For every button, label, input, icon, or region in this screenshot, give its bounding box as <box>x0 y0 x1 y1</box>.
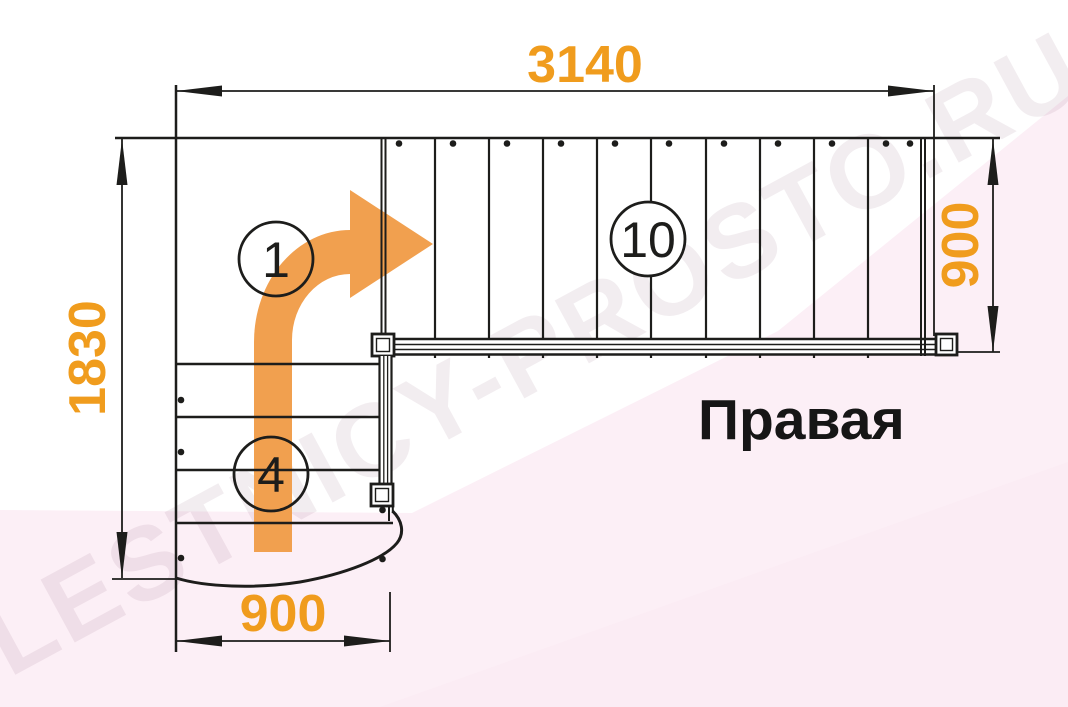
step-number-1: 1 <box>262 232 290 288</box>
newel-post-bottom <box>371 484 393 506</box>
orientation-label: Правая <box>698 387 958 453</box>
lower-handrail <box>379 356 392 484</box>
step-number-4: 4 <box>257 447 285 503</box>
step-number-10: 10 <box>620 212 676 268</box>
dimension-arrowheads <box>117 86 999 647</box>
stair-outline <box>115 85 1000 652</box>
dim-label-top: 3140 <box>527 36 643 94</box>
dim-label-bottom: 900 <box>240 585 327 643</box>
dim-label-right: 900 <box>932 202 990 289</box>
staircase-plan-page: LESTNICY-PROSTO.RU <box>0 0 1068 707</box>
upper-flight-right-edge <box>921 138 925 356</box>
upper-handrail <box>394 339 936 355</box>
dim-label-left: 1830 <box>59 300 117 416</box>
newel-post-left <box>372 334 394 356</box>
newel-post-right <box>936 334 957 355</box>
dimension-lines <box>112 91 1000 652</box>
staircase-drawing: 3140 1830 900 900 1 10 4 <box>0 0 1068 707</box>
lower-flight-right-edge <box>389 506 393 521</box>
